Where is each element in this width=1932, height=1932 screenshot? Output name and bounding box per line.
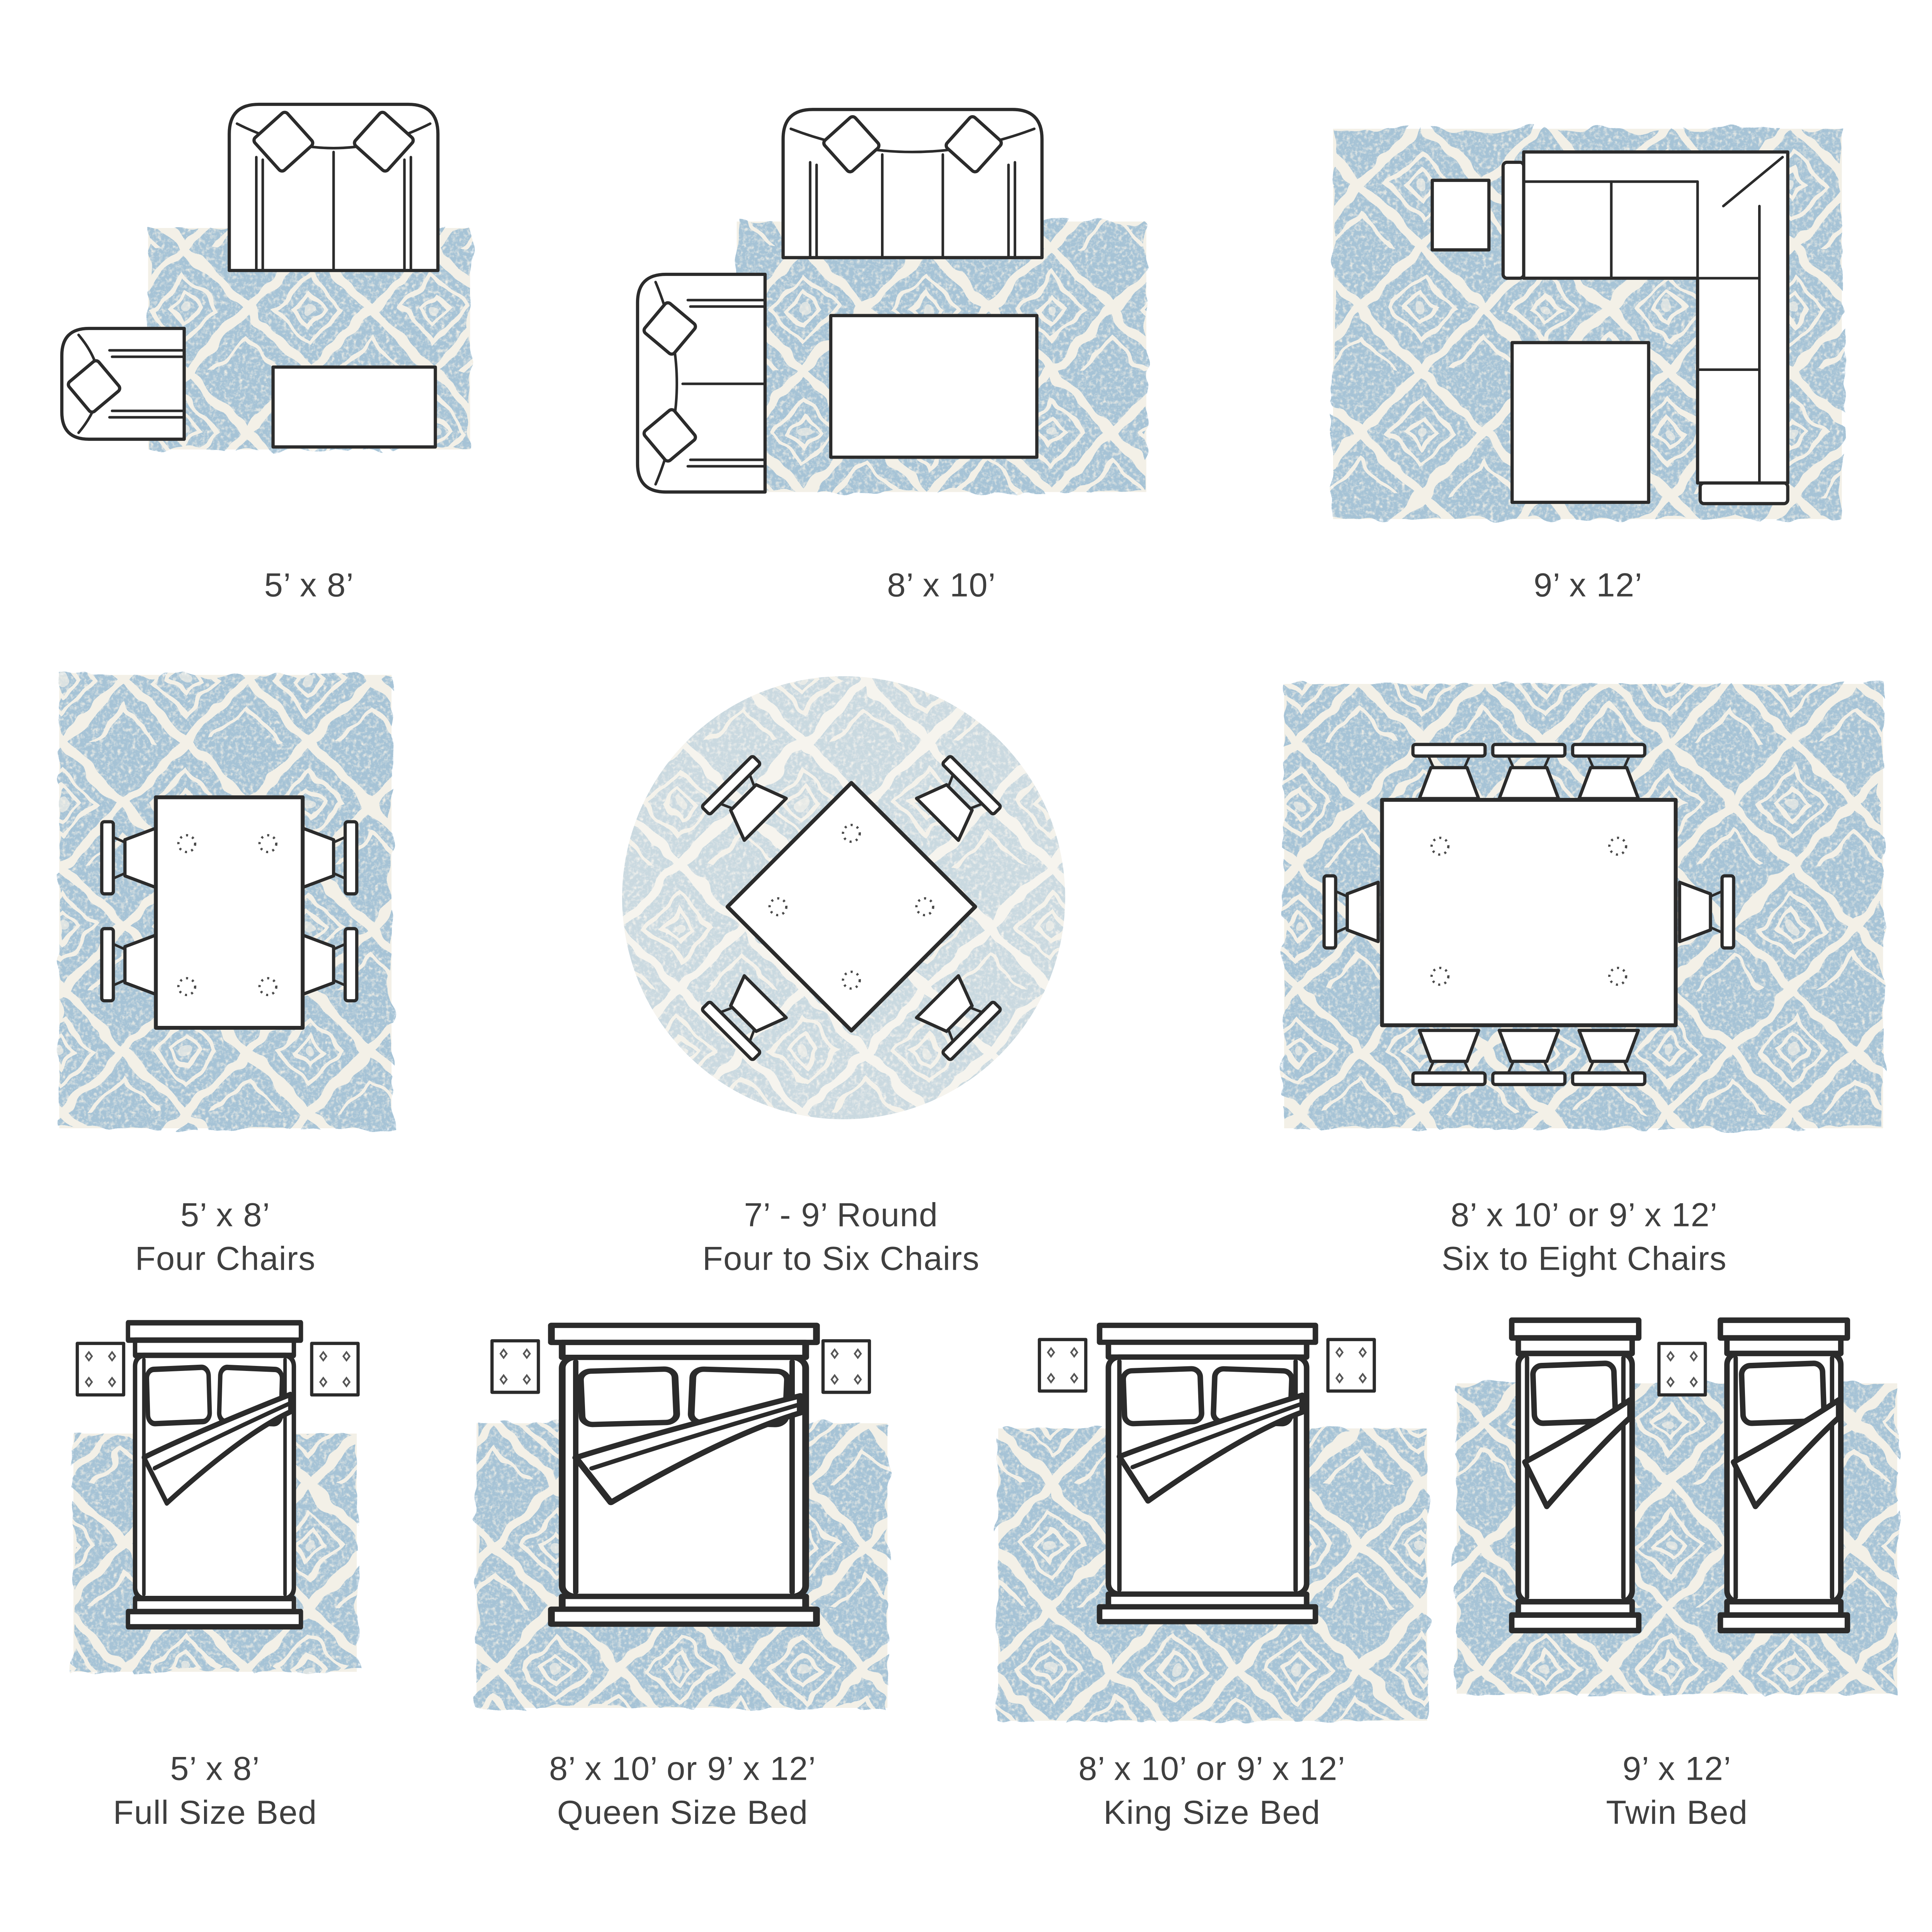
scene-dining-5x8 [59,675,391,1128]
label-living-8x10: 8’ x 10’ [887,563,996,607]
size-text: 8’ x 10’ or 9’ x 12’ [549,1747,816,1790]
label-living-9x12: 9’ x 12’ [1534,563,1643,607]
description-text: Queen Size Bed [549,1790,816,1834]
size-text: 9’ x 12’ [1606,1747,1748,1790]
nightstand [1328,1340,1374,1391]
size-text: 9’ x 12’ [1534,563,1643,607]
label-bed-queen: 8’ x 10’ or 9’ x 12’ Queen Size Bed [549,1747,816,1834]
scene-dining-large [1284,684,1883,1128]
king-bed [1100,1325,1316,1622]
label-bed-full: 5’ x 8’ Full Size Bed [113,1747,317,1834]
label-living-5x8: 5’ x 8’ [264,563,354,607]
label-dining-large: 8’ x 10’ or 9’ x 12’ Six to Eight Chairs [1442,1193,1727,1281]
dining-table [156,797,303,1028]
nightstand [823,1341,869,1392]
scene-bed-full [73,1323,358,1672]
size-text: 5’ x 8’ [113,1747,317,1790]
nightstand [1039,1340,1086,1391]
nightstand [1659,1344,1705,1395]
coffee-table [1512,343,1648,502]
size-text: 5’ x 8’ [264,563,354,607]
sofa [783,109,1042,257]
scene-living-8x10 [638,109,1146,492]
size-text: 5’ x 8’ [135,1193,316,1236]
armchair [62,328,184,439]
nightstand [492,1341,538,1392]
size-text: 8’ x 10’ or 9’ x 12’ [1078,1747,1345,1790]
description-text: Four Chairs [135,1236,316,1280]
sofa [229,104,438,270]
size-text: 7’ - 9’ Round [702,1193,980,1236]
scene-living-5x8 [62,104,470,449]
description-text: King Size Bed [1078,1790,1345,1834]
size-text: 8’ x 10’ [887,563,996,607]
label-dining-5x8: 5’ x 8’ Four Chairs [135,1193,316,1281]
scene-bed-queen [476,1325,887,1708]
queen-bed [551,1325,816,1624]
rug-size-guide: 5’ x 8’ 8’ x 10’ 9’ x 12’ 5’ x 8’ Four C… [0,0,1932,1932]
nightstand [77,1344,124,1395]
twin-bed [1512,1320,1639,1631]
label-bed-king: 8’ x 10’ or 9’ x 12’ King Size Bed [1078,1747,1345,1834]
description-text: Twin Bed [1606,1790,1748,1834]
scene-living-9x12 [1333,129,1842,519]
label-bed-twin: 9’ x 12’ Twin Bed [1606,1747,1748,1834]
side-table [1432,180,1489,250]
nightstand [312,1344,358,1395]
description-text: Full Size Bed [113,1790,317,1834]
coffee-table [273,367,435,447]
scene-dining-round [618,672,1069,1123]
guide-canvas [0,0,1932,1932]
description-text: Six to Eight Chairs [1442,1236,1727,1280]
loveseat [638,274,765,492]
size-text: 8’ x 10’ or 9’ x 12’ [1442,1193,1727,1236]
twin-bed [1720,1320,1847,1631]
scene-bed-twin [1457,1320,1897,1694]
label-dining-round: 7’ - 9’ Round Four to Six Chairs [702,1193,980,1281]
full-bed [128,1323,301,1627]
coffee-table [831,316,1037,457]
dining-table [1382,800,1676,1025]
scene-bed-king [998,1325,1427,1721]
description-text: Four to Six Chairs [702,1236,980,1280]
